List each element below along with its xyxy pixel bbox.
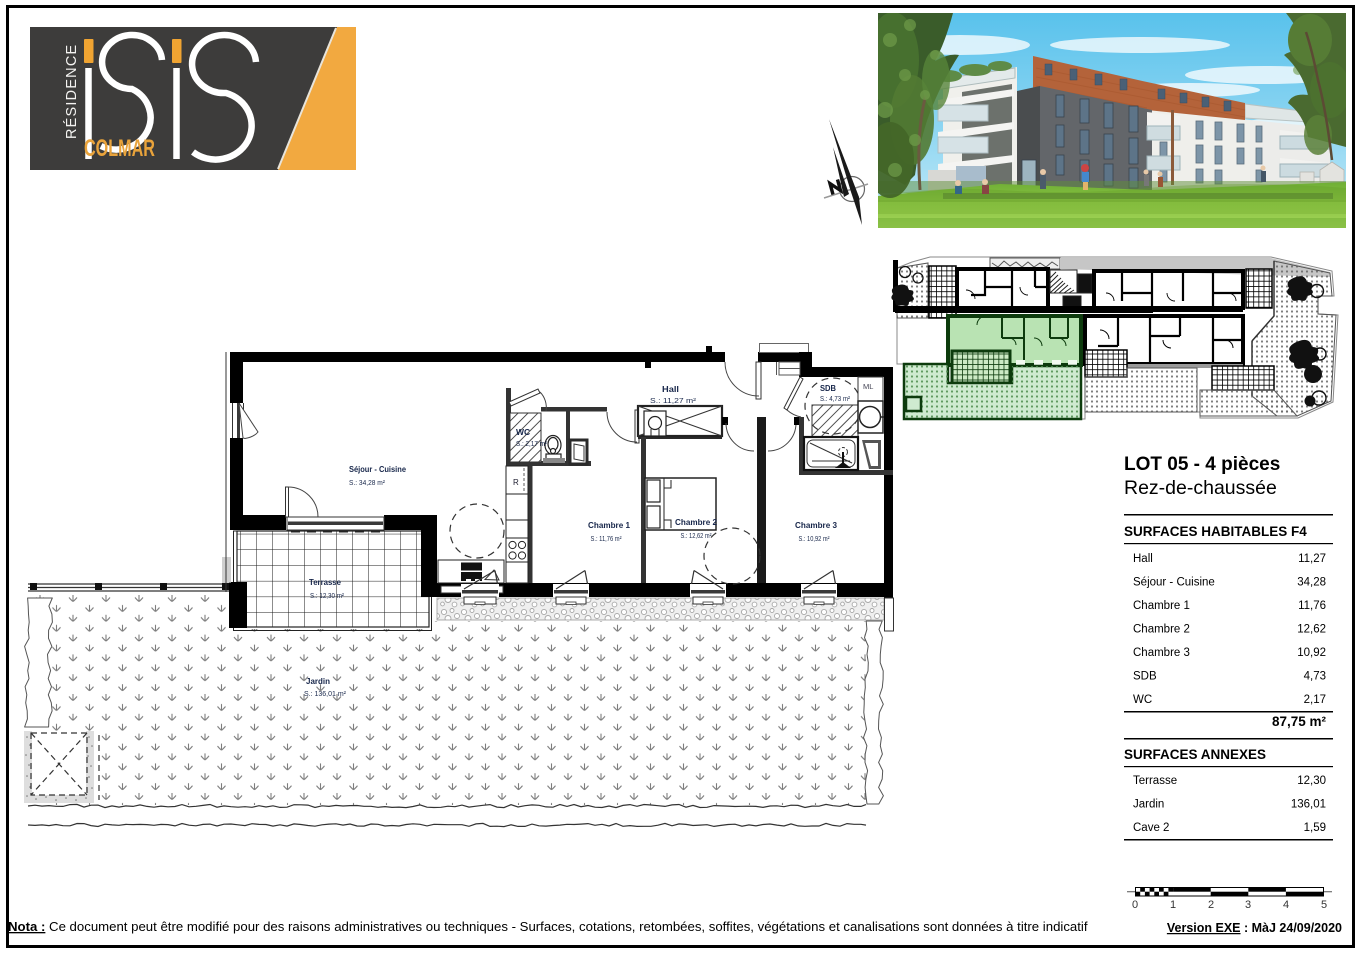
svg-text:ML: ML — [863, 382, 873, 391]
svg-text:11,76: 11,76 — [1298, 600, 1326, 612]
svg-text:136,01: 136,01 — [1291, 799, 1326, 811]
svg-text:S.: 2,17 m²: S.: 2,17 m² — [516, 439, 547, 448]
svg-text:COLMAR: COLMAR — [84, 135, 155, 162]
svg-text:87,75 m²: 87,75 m² — [1272, 714, 1327, 729]
svg-text:Chambre 1: Chambre 1 — [588, 520, 630, 530]
svg-text:12,30: 12,30 — [1297, 775, 1326, 787]
svg-text:0: 0 — [1132, 899, 1138, 911]
svg-text:S.: 136,01 m²: S.: 136,01 m² — [304, 689, 346, 698]
svg-text:2: 2 — [1208, 899, 1214, 911]
svg-text:1,59: 1,59 — [1304, 822, 1326, 834]
svg-text:Hall: Hall — [1133, 553, 1153, 565]
svg-text:SDB: SDB — [1133, 671, 1157, 683]
svg-text:2,17: 2,17 — [1304, 694, 1326, 706]
svg-text:Rez-de-chaussée: Rez-de-chaussée — [1124, 477, 1277, 499]
svg-text:Nota : Ce document peut être m: Nota : Ce document peut être modifié pou… — [8, 919, 1088, 934]
svg-text:Hall: Hall — [662, 384, 679, 394]
svg-text:1: 1 — [1170, 899, 1176, 911]
svg-text:4: 4 — [1283, 899, 1289, 911]
svg-text:WC: WC — [1133, 694, 1152, 706]
svg-text:S.: 4,73 m²: S.: 4,73 m² — [820, 394, 850, 403]
svg-text:S.: 11,76 m²: S.: 11,76 m² — [591, 534, 622, 543]
svg-text:34,28: 34,28 — [1297, 577, 1326, 589]
svg-text:Chambre 1: Chambre 1 — [1133, 600, 1190, 612]
svg-text:10,92: 10,92 — [1297, 647, 1326, 659]
svg-text:Séjour - Cuisine: Séjour - Cuisine — [1133, 577, 1215, 589]
svg-text:Chambre 3: Chambre 3 — [795, 520, 837, 530]
svg-text:S.: 10,92 m²: S.: 10,92 m² — [799, 534, 830, 543]
svg-text:Chambre 2: Chambre 2 — [675, 517, 717, 527]
svg-text:Version EXE : MàJ 24/09/2020: Version EXE : MàJ 24/09/2020 — [1167, 921, 1342, 935]
svg-text:WC: WC — [516, 427, 530, 437]
svg-text:Jardin: Jardin — [306, 676, 330, 686]
svg-text:S.: 12,30 m²: S.: 12,30 m² — [310, 591, 344, 600]
svg-text:Terrasse: Terrasse — [309, 577, 341, 587]
svg-text:Terrasse: Terrasse — [1133, 775, 1177, 787]
svg-text:SDB: SDB — [820, 383, 836, 393]
svg-text:Chambre 2: Chambre 2 — [1133, 624, 1190, 636]
svg-text:12,62: 12,62 — [1297, 624, 1326, 636]
svg-text:11,27: 11,27 — [1298, 553, 1326, 565]
svg-text:4,73: 4,73 — [1304, 671, 1326, 683]
svg-text:Chambre 3: Chambre 3 — [1133, 647, 1190, 659]
svg-text:Jardin: Jardin — [1133, 799, 1164, 811]
svg-text:SURFACES HABITABLES F4: SURFACES HABITABLES F4 — [1124, 524, 1307, 539]
svg-text:5: 5 — [1321, 899, 1327, 911]
svg-text:S.: 12,62 m²: S.: 12,62 m² — [681, 531, 712, 540]
svg-text:Cave 2: Cave 2 — [1133, 822, 1169, 834]
svg-text:3: 3 — [1245, 899, 1251, 911]
svg-text:RÉSIDENCE: RÉSIDENCE — [63, 44, 80, 139]
svg-text:R: R — [513, 478, 519, 487]
svg-text:S.: 11,27 m²: S.: 11,27 m² — [650, 396, 697, 405]
svg-text:LOT 05 - 4 pièces: LOT 05 - 4 pièces — [1124, 454, 1280, 475]
svg-text:SURFACES ANNEXES: SURFACES ANNEXES — [1124, 747, 1266, 762]
svg-text:S.: 34,28 m²: S.: 34,28 m² — [349, 478, 385, 487]
svg-text:Séjour - Cuisine: Séjour - Cuisine — [349, 464, 406, 474]
